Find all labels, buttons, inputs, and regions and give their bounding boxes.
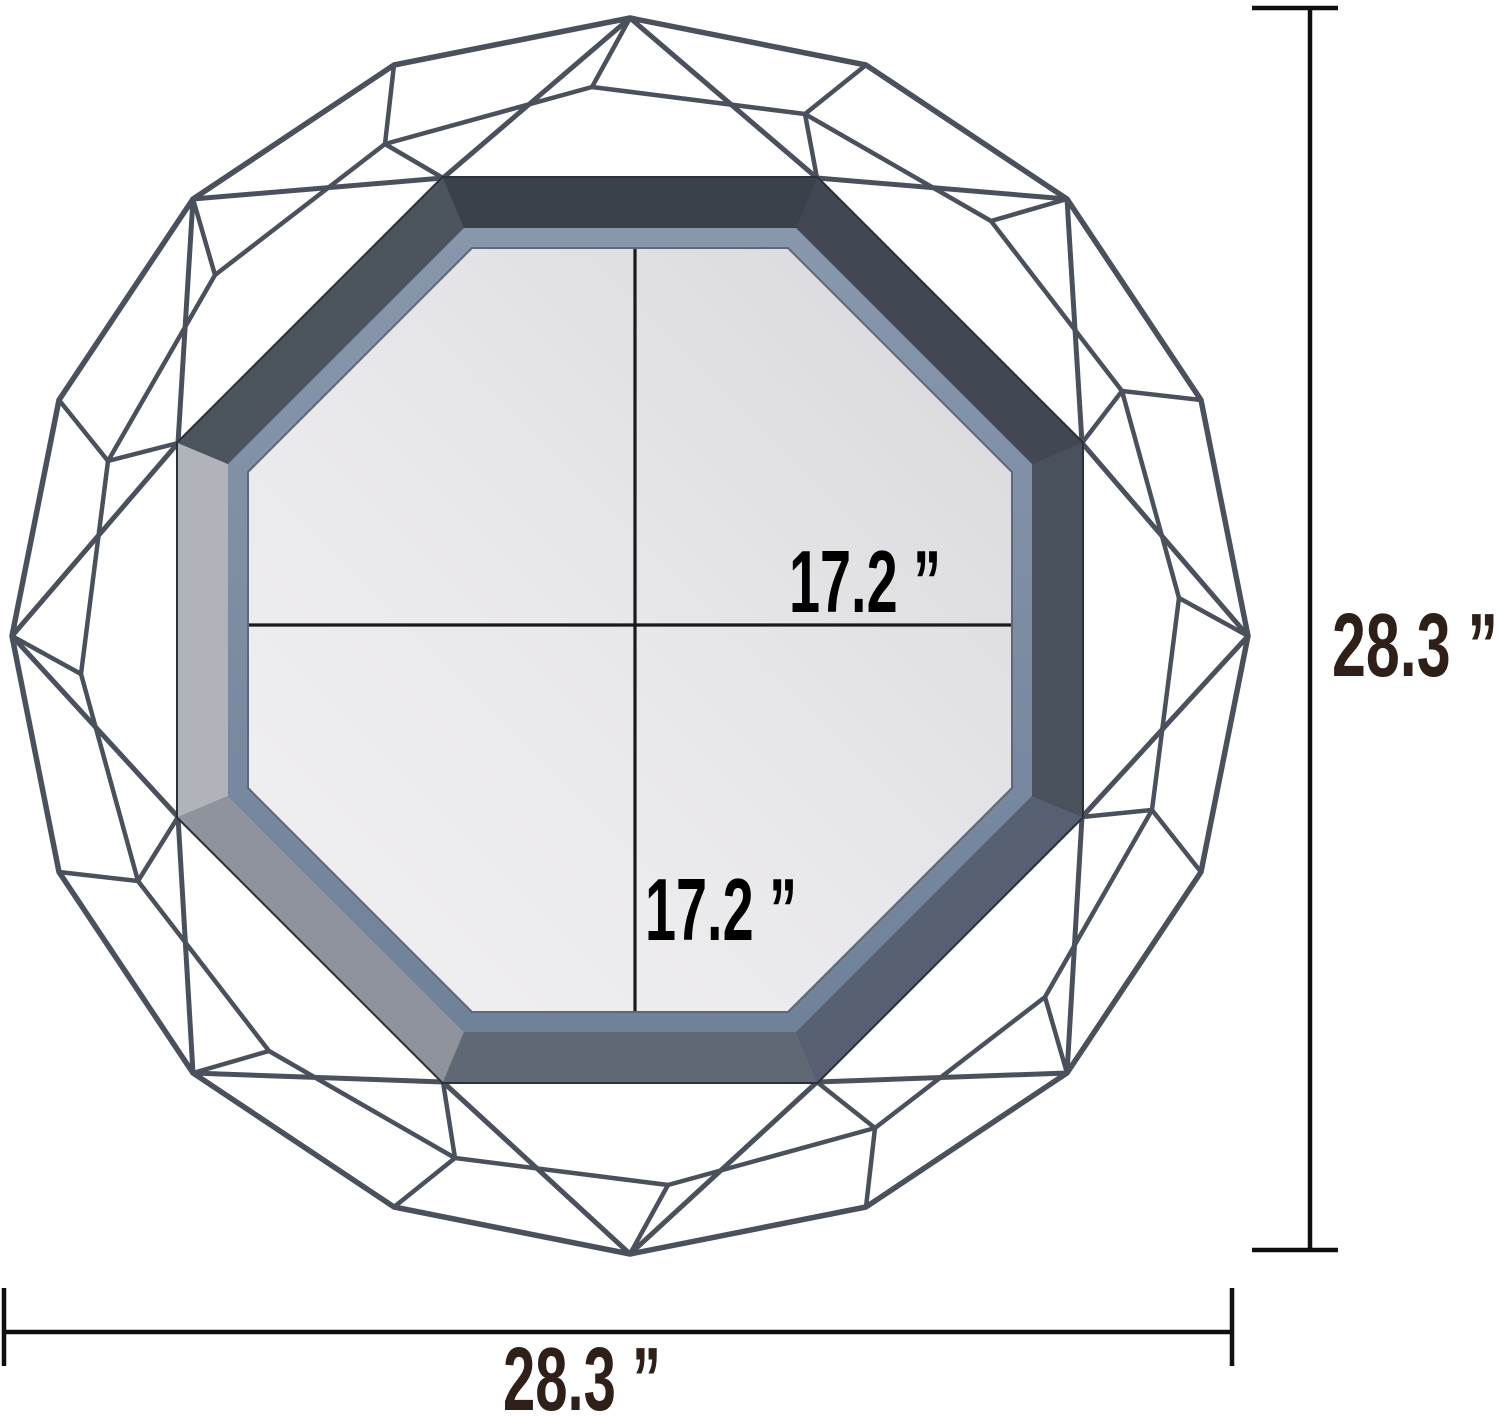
diagram-canvas: 17.2 ” 17.2 ” 28.3 ” 28.3 ”	[0, 0, 1500, 1422]
overall-height-dimension	[1252, 8, 1338, 1250]
mirror-width-label: 17.2 ”	[789, 532, 941, 631]
frame-wall-left	[178, 443, 228, 817]
frame-wall-top	[443, 178, 817, 228]
frame-wall-bottom	[443, 1032, 817, 1082]
frame-wall-right	[1032, 443, 1082, 817]
overall-width-label: 28.3 ”	[503, 1330, 661, 1422]
mirror-frame	[178, 178, 1082, 1082]
overall-height-label: 28.3 ”	[1332, 596, 1498, 696]
mirror-height-label: 17.2 ”	[645, 860, 797, 959]
